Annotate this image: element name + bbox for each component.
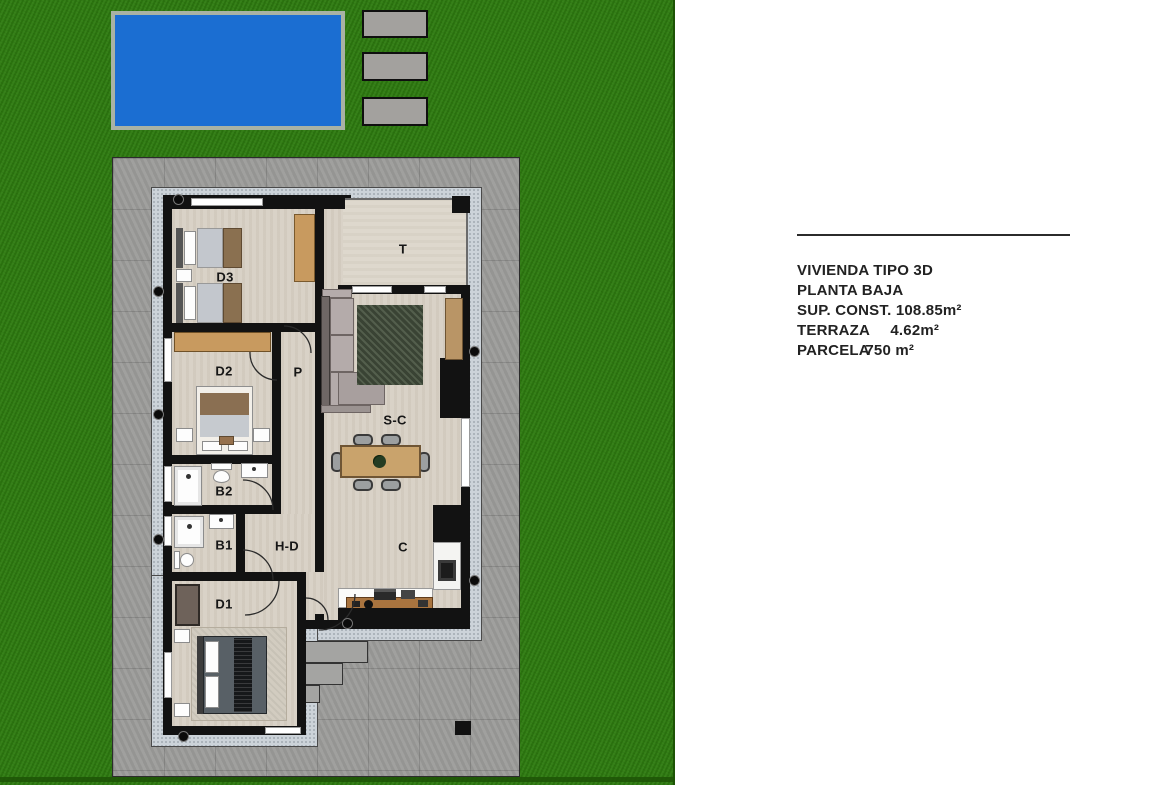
legend-title: VIVIENDA TIPO 3D bbox=[797, 261, 1097, 281]
corridor-p-floor bbox=[281, 464, 315, 514]
parking-slab-1 bbox=[362, 10, 428, 38]
shower-drain bbox=[186, 474, 191, 479]
bed-headboard bbox=[176, 283, 183, 323]
bed-pillow bbox=[184, 286, 196, 320]
wall bbox=[236, 505, 245, 547]
wardrobe bbox=[294, 214, 315, 282]
legend-plot: PARCELA 750 m² bbox=[797, 341, 1097, 361]
legend: VIVIENDA TIPO 3D PLANTA BAJA SUP. CONST.… bbox=[797, 261, 1097, 361]
terrace-door-glass bbox=[352, 286, 392, 293]
dining-chair bbox=[381, 479, 401, 491]
legend-built-area: SUP. CONST. 108.85m² bbox=[797, 301, 1097, 321]
bed-mattress bbox=[197, 283, 223, 323]
shower-tray bbox=[174, 516, 204, 548]
legend-floor: PLANTA BAJA bbox=[797, 281, 1097, 301]
survey-dot bbox=[179, 732, 188, 741]
corridor-p-floor bbox=[281, 332, 315, 464]
room-label-b2: B2 bbox=[215, 484, 232, 499]
wardrobe bbox=[175, 584, 200, 626]
legend-plot-value: 750 m² bbox=[865, 342, 914, 359]
sink-faucet bbox=[219, 518, 223, 522]
oven bbox=[438, 560, 456, 581]
sofa-cushion bbox=[330, 335, 354, 372]
room-label-d2: D2 bbox=[215, 364, 232, 379]
wall bbox=[272, 360, 281, 513]
survey-dot bbox=[154, 410, 163, 419]
bed-pillow bbox=[184, 231, 196, 265]
room-label-d1: D1 bbox=[215, 597, 232, 612]
counter-item bbox=[418, 600, 428, 607]
nightstand bbox=[176, 428, 193, 442]
wall bbox=[297, 620, 306, 629]
bed-pillow bbox=[205, 676, 219, 708]
bed-blanket bbox=[223, 228, 242, 268]
toilet-tank bbox=[211, 463, 232, 470]
room-label-sc: S-C bbox=[383, 413, 406, 428]
bed-mattress bbox=[197, 228, 223, 268]
room-label-hd: H-D bbox=[275, 539, 299, 554]
window bbox=[164, 652, 172, 698]
window bbox=[164, 466, 172, 502]
terrace-corner-pillar bbox=[452, 196, 470, 213]
window bbox=[164, 516, 172, 546]
nightstand bbox=[174, 703, 190, 717]
parking-slab-3 bbox=[362, 97, 428, 126]
shower-tray bbox=[174, 466, 202, 506]
bed-pillow bbox=[205, 641, 219, 673]
legend-terrace-value: 4.62m² bbox=[890, 322, 939, 339]
survey-dot bbox=[154, 535, 163, 544]
kitchen-counter bbox=[338, 608, 470, 620]
survey-dot bbox=[343, 619, 352, 628]
terrace-door-glass bbox=[424, 286, 446, 293]
nightstand bbox=[176, 269, 192, 282]
room-label-c: C bbox=[398, 540, 408, 555]
media-wall bbox=[440, 358, 470, 418]
survey-dot bbox=[174, 195, 183, 204]
utility-marker bbox=[455, 721, 471, 735]
sideboard bbox=[445, 298, 463, 360]
toilet-bowl bbox=[180, 553, 194, 567]
accent-pillow bbox=[219, 436, 234, 445]
nightstand bbox=[253, 428, 270, 442]
table-plant bbox=[373, 455, 386, 468]
sofa-armrest bbox=[321, 405, 371, 413]
wall bbox=[163, 323, 283, 332]
parking-slab-2 bbox=[362, 52, 428, 81]
room-label-d3: D3 bbox=[216, 270, 233, 285]
wall bbox=[163, 505, 281, 514]
shower-drain bbox=[187, 524, 192, 529]
legend-rule bbox=[797, 234, 1070, 236]
wall bbox=[315, 614, 324, 629]
bed-blanket bbox=[200, 393, 249, 415]
dining-chair bbox=[353, 479, 373, 491]
legend-terrace-label: TERRAZA bbox=[797, 321, 886, 341]
sink-faucet bbox=[252, 467, 256, 471]
kitchen-counter bbox=[433, 505, 461, 542]
wall bbox=[297, 572, 306, 735]
window bbox=[461, 418, 470, 487]
window bbox=[191, 198, 263, 206]
sofa-back bbox=[321, 296, 330, 412]
wall bbox=[163, 572, 245, 581]
bed-mattress bbox=[200, 415, 249, 437]
nightstand bbox=[174, 629, 190, 643]
survey-dot bbox=[470, 576, 479, 585]
bed-throw bbox=[234, 638, 252, 712]
bed-headboard bbox=[176, 228, 183, 268]
survey-dot bbox=[470, 347, 479, 356]
room-label-p: P bbox=[294, 365, 303, 380]
window bbox=[164, 338, 172, 382]
hall-hd-floor bbox=[306, 572, 324, 620]
legend-terrace: TERRAZA 4.62m² bbox=[797, 321, 1097, 341]
room-label-b1: B1 bbox=[215, 538, 232, 553]
swimming-pool bbox=[111, 11, 345, 130]
cabinet-row bbox=[174, 332, 271, 352]
counter-item bbox=[352, 601, 360, 607]
lawn-edge bbox=[0, 777, 675, 782]
living-rug bbox=[357, 305, 423, 385]
sofa-cushion bbox=[330, 298, 354, 335]
site-plan: D3 D2 P B2 B1 H-D D1 T S-C C VIVIENDA TI… bbox=[0, 0, 1170, 785]
bed-blanket bbox=[223, 283, 242, 323]
survey-dot bbox=[154, 287, 163, 296]
toilet-bowl bbox=[213, 470, 230, 483]
small-appliance bbox=[401, 590, 415, 599]
window bbox=[265, 727, 301, 734]
room-label-t: T bbox=[399, 242, 407, 257]
legend-plot-label: PARCELA bbox=[797, 341, 861, 361]
microwave bbox=[374, 589, 396, 600]
